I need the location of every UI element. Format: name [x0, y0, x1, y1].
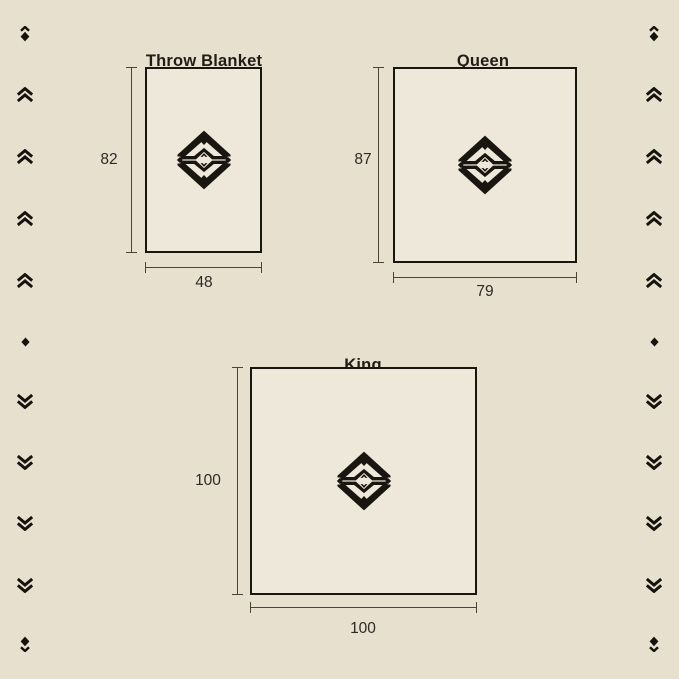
- ornament-double-chevron-up-icon: [646, 149, 662, 165]
- blanket-outline-queen: [393, 67, 577, 263]
- blanket-outline-king: [250, 367, 477, 595]
- width-value-king: 100: [333, 621, 393, 637]
- blanket-outline-throw: [145, 67, 262, 253]
- brand-emblem-icon: [335, 451, 393, 511]
- ornament-diamond-icon: [650, 337, 659, 347]
- width-dimension-line-queen: [393, 272, 577, 283]
- width-dimension-line-king: [250, 602, 477, 613]
- height-value-king: 100: [186, 473, 230, 489]
- ornament-diamond-chevron-down-icon: [20, 636, 30, 652]
- ornament-double-chevron-down-icon: [646, 515, 662, 531]
- ornament-double-chevron-up-icon: [646, 211, 662, 227]
- brand-emblem-icon: [456, 135, 514, 195]
- ornament-double-chevron-up-icon: [17, 87, 33, 103]
- ornament-double-chevron-down-icon: [646, 577, 662, 593]
- ornament-diamond-chevron-up-icon: [20, 26, 30, 42]
- ornament-diamond-chevron-up-icon: [649, 26, 659, 42]
- ornament-double-chevron-down-icon: [17, 393, 33, 409]
- height-dimension-line-king: [232, 367, 243, 595]
- ornament-double-chevron-up-icon: [17, 211, 33, 227]
- brand-emblem-icon: [175, 130, 233, 190]
- height-dimension-line-throw: [126, 67, 137, 253]
- width-value-throw: 48: [174, 275, 234, 291]
- ornament-double-chevron-down-icon: [17, 577, 33, 593]
- ornament-double-chevron-down-icon: [646, 454, 662, 470]
- ornament-diamond-chevron-down-icon: [649, 636, 659, 652]
- width-value-queen: 79: [455, 284, 515, 300]
- width-dimension-line-throw: [145, 262, 262, 273]
- ornament-double-chevron-down-icon: [17, 515, 33, 531]
- height-value-throw: 82: [94, 152, 124, 168]
- ornament-double-chevron-up-icon: [17, 149, 33, 165]
- ornament-diamond-icon: [21, 337, 30, 347]
- ornament-double-chevron-up-icon: [646, 273, 662, 289]
- ornament-double-chevron-up-icon: [646, 87, 662, 103]
- blanket-size-chart: Throw Blanket 82 48 Queen 87 79 King: [0, 0, 679, 679]
- height-value-queen: 87: [348, 152, 378, 168]
- ornament-double-chevron-down-icon: [646, 393, 662, 409]
- ornament-double-chevron-down-icon: [17, 454, 33, 470]
- ornament-double-chevron-up-icon: [17, 273, 33, 289]
